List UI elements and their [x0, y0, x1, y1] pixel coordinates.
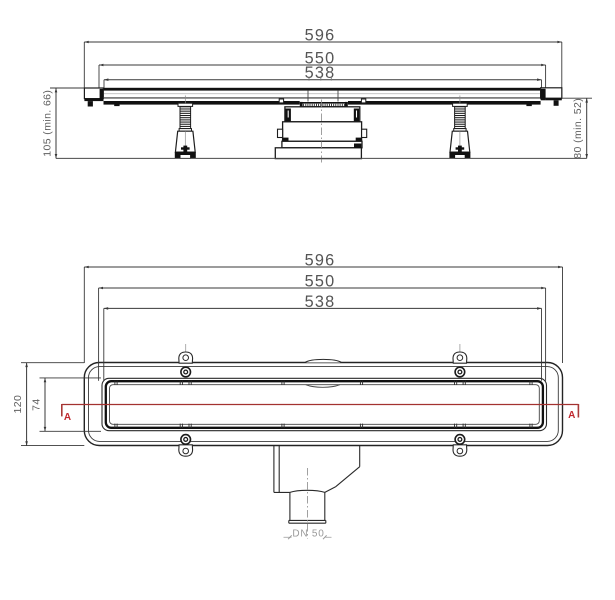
svg-text:DN 50: DN 50: [292, 529, 324, 540]
svg-text:A: A: [568, 410, 575, 421]
svg-text:A: A: [64, 412, 71, 423]
svg-text:596: 596: [305, 252, 336, 270]
svg-text:120: 120: [12, 395, 24, 414]
svg-text:80 (min. 52): 80 (min. 52): [572, 98, 584, 159]
svg-text:550: 550: [305, 273, 336, 291]
svg-text:74: 74: [30, 398, 42, 410]
svg-text:596: 596: [305, 27, 336, 45]
svg-text:105 (min. 66): 105 (min. 66): [41, 90, 53, 157]
svg-text:538: 538: [305, 293, 336, 311]
